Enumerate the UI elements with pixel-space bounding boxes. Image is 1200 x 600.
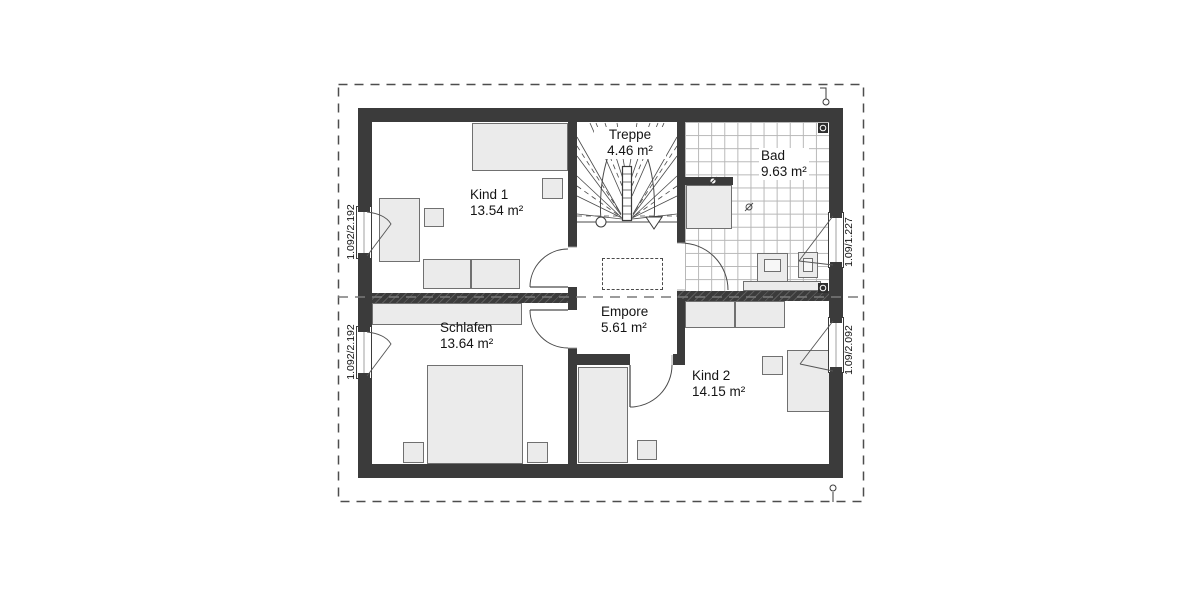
shower [686,185,732,229]
nightstand-schlafen-left [403,442,424,463]
washbasin-bowl [803,258,813,272]
floor-plan: Kind 1 13.54 m² Treppe 4.46 m² Bad 9.63 … [0,0,1200,600]
room-area: 13.54 m² [470,203,523,219]
door-kind2 [630,355,672,407]
room-area: 5.61 m² [601,320,648,336]
chair-kind2 [762,356,783,375]
door-schlafen [530,310,577,348]
room-label-kind1: Kind 1 13.54 m² [470,187,523,219]
room-area: 4.46 m² [596,143,664,159]
room-name: Bad [761,148,807,164]
wardrobe-kind2 [578,367,628,463]
room-name: Kind 1 [470,187,523,203]
wall-bottom [358,464,843,478]
room-label-bad: Bad 9.63 m² [759,148,809,180]
room-label-empore: Empore 5.61 m² [601,304,648,336]
vent-symbol-top [820,88,829,105]
wall-middle-left [372,293,568,303]
bed-schlafen [427,365,523,464]
wall-left [358,108,372,478]
stair-direction-arrow [646,217,662,229]
loft-opening-dashed [602,258,663,290]
room-name: Kind 2 [692,368,745,384]
side-table-kind1 [542,178,563,199]
floor-drain-bottom [818,283,828,293]
wall-stair-right [677,122,685,243]
dimension-label-left-bottom: 1.092/2.192 [345,324,357,379]
room-name: Treppe [596,127,664,143]
chair-kind1 [424,208,444,227]
room-label-schlafen: Schlafen 13.64 m² [440,320,493,352]
floor-drain-top [818,123,828,133]
nightstand-kind2 [637,440,657,460]
room-name: Schlafen [440,320,493,336]
dimension-label-right-top: 1.09/1.227 [843,217,855,267]
bed-kind1 [379,198,420,262]
wall-empore-right [677,299,685,356]
dimension-label-left-top: 1.092/2.192 [345,204,357,259]
wardrobe-kind1 [472,123,568,171]
sofa-kind2-left [685,301,735,328]
room-area: 9.63 m² [761,164,807,180]
room-label-kind2: Kind 2 14.15 m² [692,368,745,400]
sofa-kind1-right [471,259,520,289]
door-kind1 [530,247,577,287]
room-area: 13.64 m² [440,336,493,352]
room-name: Empore [601,304,648,320]
toilet-lid [764,259,781,272]
room-area: 14.15 m² [692,384,745,400]
wall-stair-left [568,122,577,247]
wall-right [829,108,843,478]
wall-schlafen-kind2 [568,348,577,464]
vent-symbol-bottom [830,485,836,502]
bath-shelf [743,281,821,291]
wall-middle-right [677,291,829,301]
wall-shower-stub [685,177,733,185]
wall-top [358,108,843,122]
nightstand-schlafen-right [527,442,548,463]
room-label-treppe: Treppe 4.46 m² [594,127,666,159]
sofa-kind2-right [735,301,785,328]
dimension-label-right-bottom: 1.09/2.092 [843,325,855,375]
wall-stub-kind2-door [673,354,685,365]
bed-kind2 [787,350,830,412]
wall-empore-kind2 [577,354,630,365]
sofa-kind1-left [423,259,471,289]
wall-pier-center [568,287,577,310]
